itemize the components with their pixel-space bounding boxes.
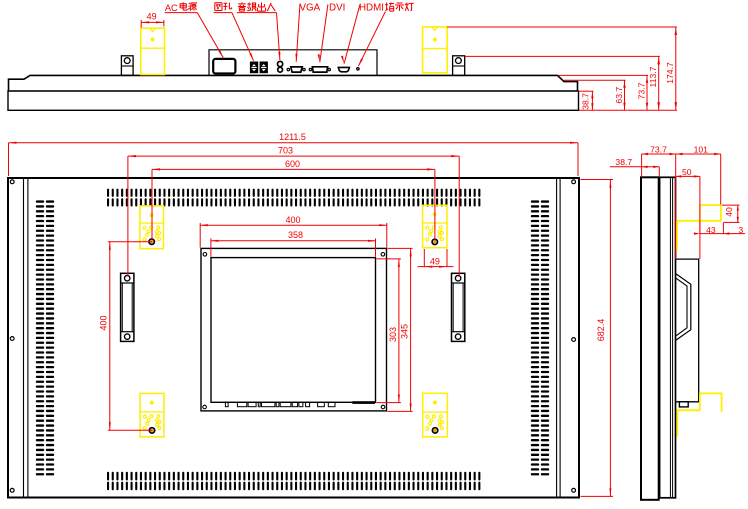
svg-text:174.7: 174.7: [665, 62, 675, 84]
svg-text:400: 400: [98, 315, 108, 330]
svg-text:101: 101: [694, 144, 709, 154]
svg-text:40: 40: [724, 207, 734, 217]
svg-text:73.7: 73.7: [636, 82, 646, 99]
svg-text:38.7: 38.7: [615, 157, 632, 167]
svg-text:HDMI: HDMI: [359, 3, 384, 14]
svg-text:49: 49: [430, 256, 440, 266]
svg-text:63.7: 63.7: [614, 87, 624, 104]
svg-text:600: 600: [285, 159, 300, 169]
svg-text:1211.5: 1211.5: [279, 132, 306, 142]
svg-text:303: 303: [388, 327, 398, 342]
svg-text:113.7: 113.7: [648, 66, 658, 87]
svg-text:345: 345: [400, 324, 410, 339]
svg-text:3: 3: [738, 225, 743, 235]
svg-text:DVI: DVI: [329, 3, 345, 14]
svg-text:703: 703: [278, 145, 293, 155]
svg-text:VGA: VGA: [299, 3, 320, 14]
svg-text:38.7: 38.7: [581, 93, 591, 110]
svg-text:682.4: 682.4: [596, 319, 606, 342]
svg-text:73.7: 73.7: [650, 144, 667, 154]
svg-text:49: 49: [147, 12, 157, 22]
svg-text:AC: AC: [165, 3, 178, 13]
svg-text:400: 400: [285, 215, 300, 225]
svg-text:50: 50: [682, 167, 692, 177]
svg-text:358: 358: [288, 230, 303, 240]
